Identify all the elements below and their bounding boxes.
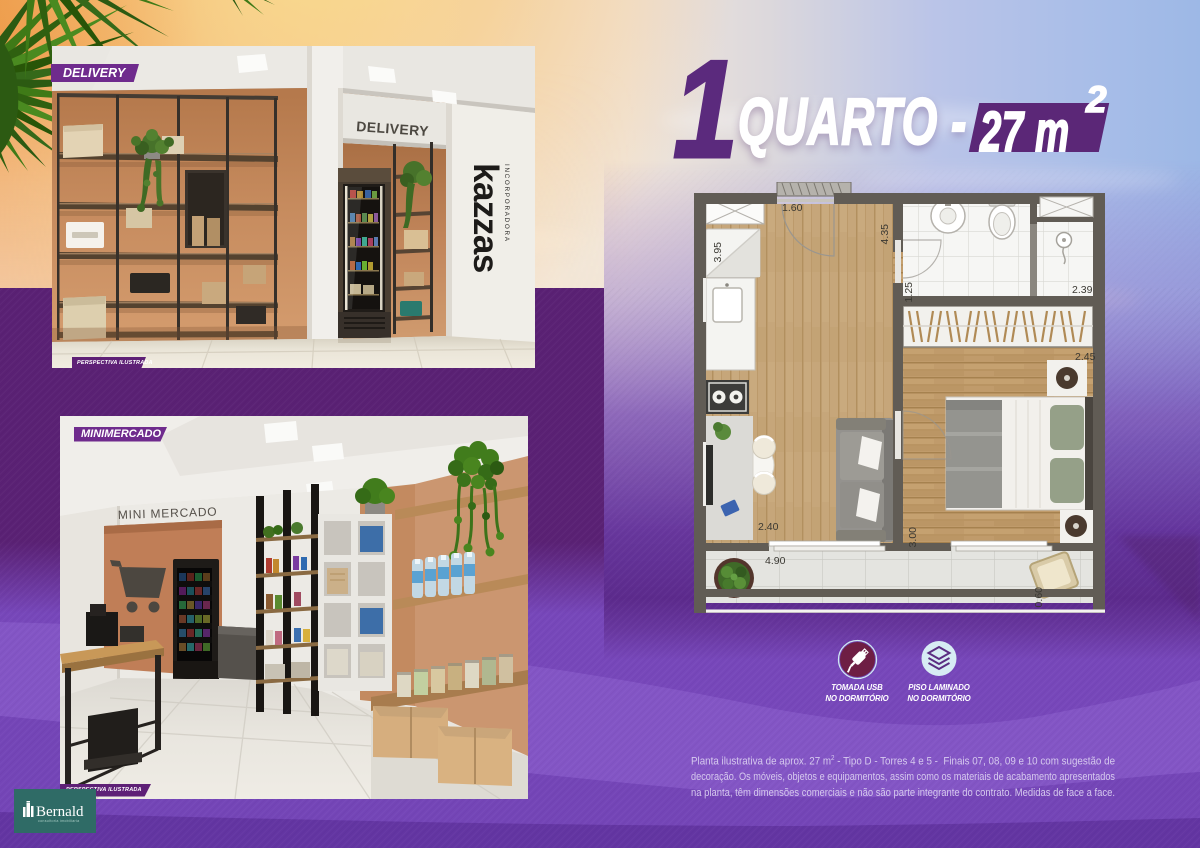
svg-text:3.95: 3.95 (712, 242, 724, 263)
svg-text:1.60: 1.60 (782, 202, 803, 214)
svg-text:2.39: 2.39 (1072, 284, 1093, 296)
svg-text:INCORPORADORA: INCORPORADORA (503, 164, 510, 243)
svg-text:4.90: 4.90 (765, 555, 786, 567)
svg-text:2.45: 2.45 (1075, 351, 1096, 363)
svg-text:4.35: 4.35 (879, 224, 891, 245)
svg-text:2.40: 2.40 (758, 521, 779, 533)
svg-text:kazzas: kazzas (466, 163, 505, 273)
svg-text:0.60: 0.60 (1033, 587, 1045, 608)
svg-text:Bernald: Bernald (36, 804, 84, 820)
svg-text:consultoria imobiliaria: consultoria imobiliaria (38, 819, 79, 823)
svg-text:3.00: 3.00 (907, 527, 919, 548)
svg-text:1.25: 1.25 (903, 282, 915, 303)
